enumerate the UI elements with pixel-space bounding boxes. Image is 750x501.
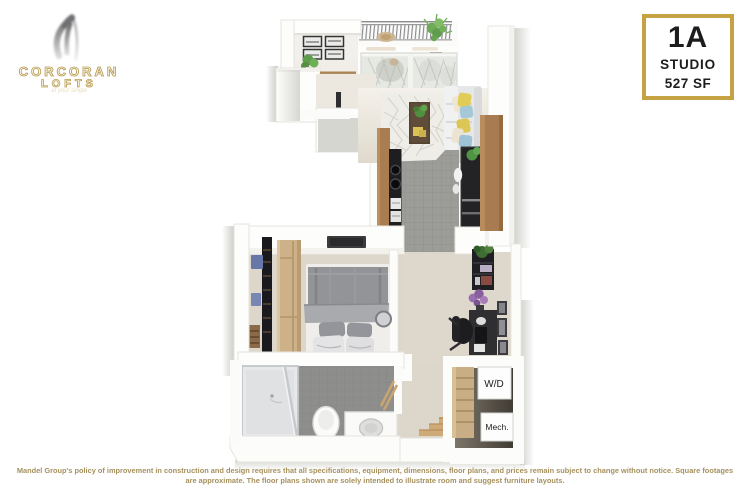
- svg-text:W/D: W/D: [484, 379, 503, 390]
- svg-text:Mech.: Mech.: [485, 422, 508, 432]
